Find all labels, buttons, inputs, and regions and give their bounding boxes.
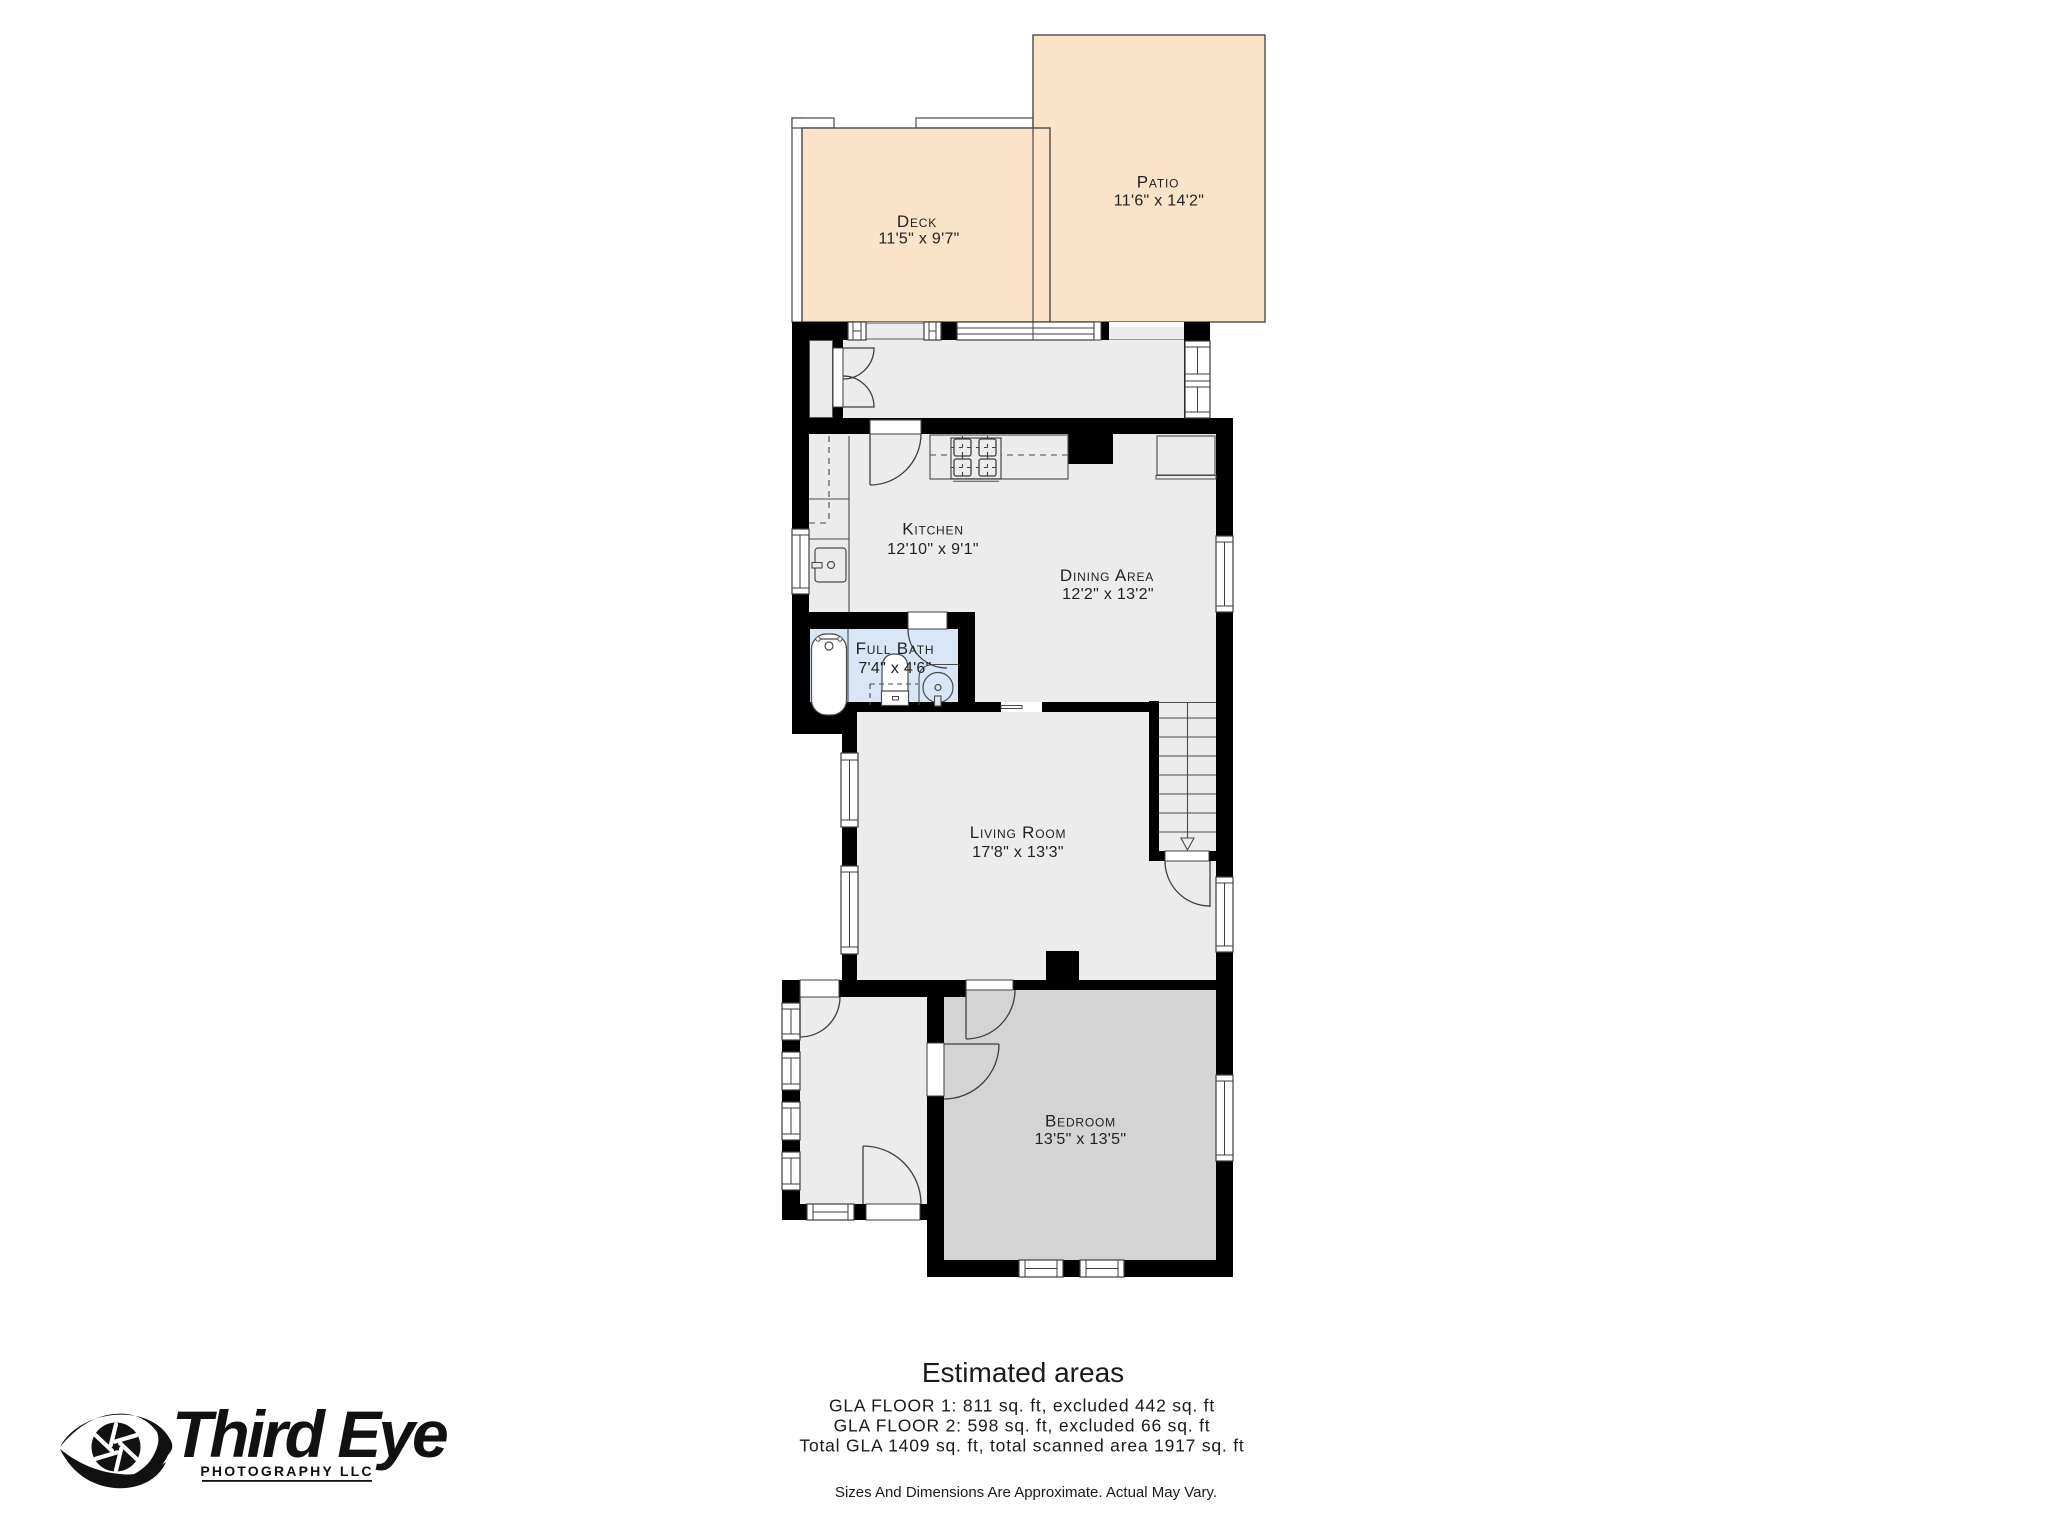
svg-text:17'8" x 13'3": 17'8" x 13'3" (972, 844, 1064, 861)
svg-text:Dining Area: Dining Area (1060, 566, 1154, 585)
svg-text:Estimated areas: Estimated areas (922, 1357, 1124, 1388)
svg-text:Total GLA 1409 sq. ft, total s: Total GLA 1409 sq. ft, total scanned are… (799, 1436, 1244, 1456)
svg-text:12'10" x 9'1": 12'10" x 9'1" (887, 541, 979, 558)
svg-text:Sizes And Dimensions Are Appro: Sizes And Dimensions Are Approximate. Ac… (835, 1484, 1217, 1501)
svg-text:12'2" x 13'2": 12'2" x 13'2" (1062, 586, 1154, 603)
svg-text:Kitchen: Kitchen (902, 520, 964, 539)
svg-text:PHOTOGRAPHY LLC: PHOTOGRAPHY LLC (200, 1463, 373, 1479)
svg-text:Full Bath: Full Bath (856, 639, 935, 658)
svg-text:11'6" x 14'2": 11'6" x 14'2" (1114, 193, 1204, 210)
svg-text:Deck: Deck (897, 212, 937, 231)
svg-text:7'4" x 4'6": 7'4" x 4'6" (858, 660, 931, 677)
svg-text:Patio: Patio (1137, 173, 1179, 192)
svg-text:Living Room: Living Room (970, 823, 1067, 842)
svg-text:11'5" x 9'7": 11'5" x 9'7" (878, 231, 959, 248)
svg-text:13'5" x 13'5": 13'5" x 13'5" (1035, 1131, 1127, 1148)
svg-text:GLA FLOOR 2: 598 sq. ft, exclu: GLA FLOOR 2: 598 sq. ft, excluded 66 sq.… (834, 1416, 1211, 1436)
svg-text:Bedroom: Bedroom (1045, 1112, 1116, 1131)
svg-text:GLA FLOOR 1: 811 sq. ft, exclu: GLA FLOOR 1: 811 sq. ft, excluded 442 sq… (829, 1396, 1215, 1416)
svg-text:Third Eye: Third Eye (172, 1397, 447, 1471)
